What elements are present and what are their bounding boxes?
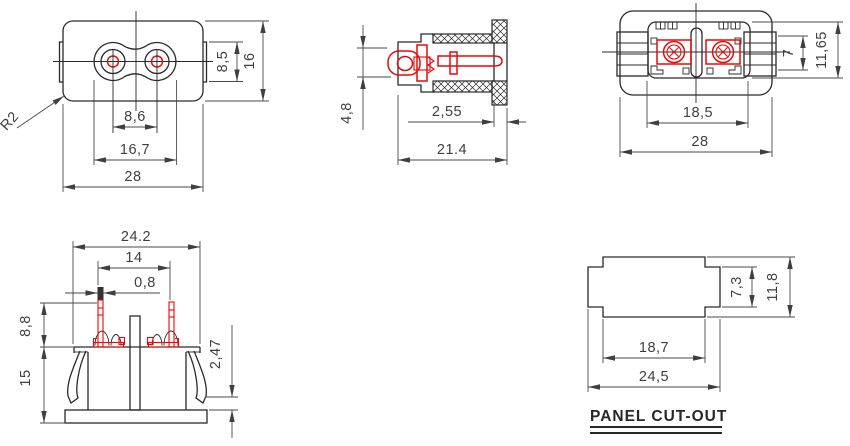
dim-standoff: 2,47	[208, 339, 224, 369]
pin-section-mark	[98, 287, 104, 300]
dim-pin-length: 8,8	[18, 315, 34, 337]
dim-overall-width: 28	[124, 169, 141, 185]
rear-dimensions: 7 11,65 18,5 28	[620, 22, 843, 157]
mount-view: 24.2 14 0,8 8,8 15 2,47	[0, 225, 280, 446]
hatched-top-wall	[433, 34, 492, 43]
front-dimensions: 8,6 16,7 28 8,5 16 R2	[0, 21, 269, 192]
panel-cutout-view: 7,3 11,8 18,7 24,5 PANEL CUT-OUT	[555, 240, 850, 446]
rear-view: 7 11,65 18,5 28	[580, 0, 850, 170]
panel-cutout-label: PANEL CUT-OUT	[590, 408, 727, 425]
contact-terminal	[388, 45, 502, 81]
mount-dimensions: 24.2 14 0,8 8,8 15 2,47	[18, 229, 238, 438]
dim-rib-span: 7	[781, 49, 797, 58]
side-section-view: 4,8 2,55 21.4	[280, 0, 550, 190]
dim-slot-width: 18,7	[639, 340, 669, 356]
dim-pin-pitch: 14	[125, 250, 142, 266]
dim-head-height: 4,8	[339, 102, 355, 124]
dim-lobe-span: 16,7	[120, 142, 150, 158]
cutout-dimensions: 7,3 11,8 18,7 24,5	[588, 257, 795, 392]
hatched-top-block	[492, 20, 507, 43]
dim-overall-depth: 21.4	[437, 142, 467, 158]
dim-rear-overall-width: 28	[691, 134, 708, 150]
mount-object-lines	[65, 316, 207, 423]
dim-pin-pitch: 8,6	[124, 109, 146, 125]
rear-object-lines	[602, 3, 790, 103]
dim-body-height: 15	[18, 369, 34, 386]
dim-cutout-width: 24,5	[639, 369, 669, 385]
center-post	[130, 316, 140, 410]
snap-wing-left	[68, 351, 86, 403]
dim-rear-wall: 2,55	[432, 104, 462, 120]
dim-corner-radius: R2	[0, 109, 23, 134]
front-view: 8,6 16,7 28 8,5 16 R2	[0, 0, 280, 212]
hatched-bottom-wall	[433, 81, 492, 92]
dim-pin-width: 0,8	[134, 275, 156, 291]
dim-slot-height: 7,3	[729, 276, 745, 298]
dim-socket-height: 8,5	[215, 51, 231, 73]
dim-pocket-height: 11,65	[814, 31, 830, 69]
snap-wing-right	[188, 351, 206, 403]
dim-overall-height: 16	[242, 52, 258, 69]
solder-pins	[94, 287, 179, 347]
technical-drawing-sheet: 8,6 16,7 28 8,5 16 R2	[0, 0, 850, 446]
dim-pocket-width: 18,5	[683, 105, 713, 121]
center-slot	[691, 28, 702, 77]
dim-cutout-height: 11,8	[765, 272, 781, 301]
base-plate	[65, 410, 207, 423]
dim-top-width: 24.2	[121, 229, 151, 245]
cutout-outline	[588, 257, 720, 317]
cutout-title: PANEL CUT-OUT	[590, 408, 727, 433]
